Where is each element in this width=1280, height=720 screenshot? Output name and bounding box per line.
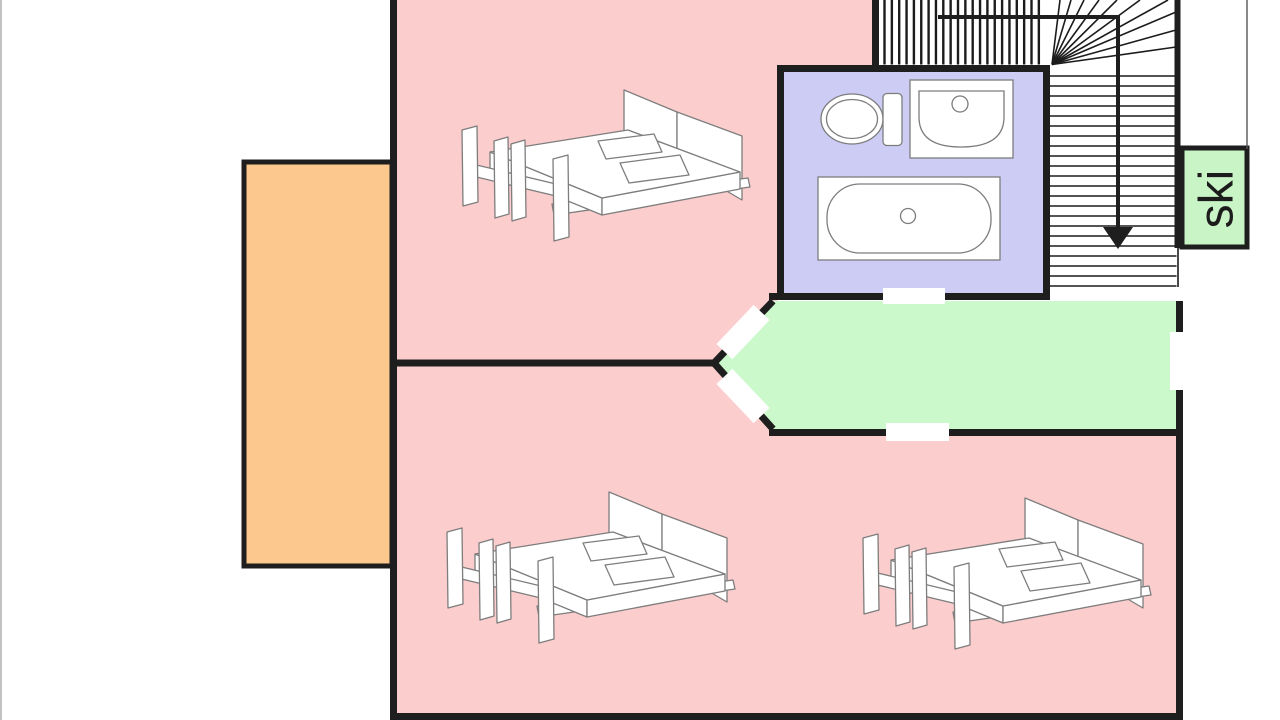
door-opening-hallway-right xyxy=(1170,332,1189,390)
door-opening-bedroom-bottom-right xyxy=(886,423,949,441)
door-opening-bathroom xyxy=(883,288,945,304)
balcony xyxy=(244,162,392,566)
floor-plan: ski xyxy=(0,0,1280,720)
toilet-icon xyxy=(821,94,902,146)
hallway-floor xyxy=(714,301,1177,429)
sink-icon xyxy=(910,80,1013,158)
ski-label-text: ski xyxy=(1191,170,1244,229)
bathtub-icon xyxy=(818,177,1000,260)
ski-label-box: ski xyxy=(1182,148,1247,247)
floor-plan-svg: ski xyxy=(0,0,1280,720)
